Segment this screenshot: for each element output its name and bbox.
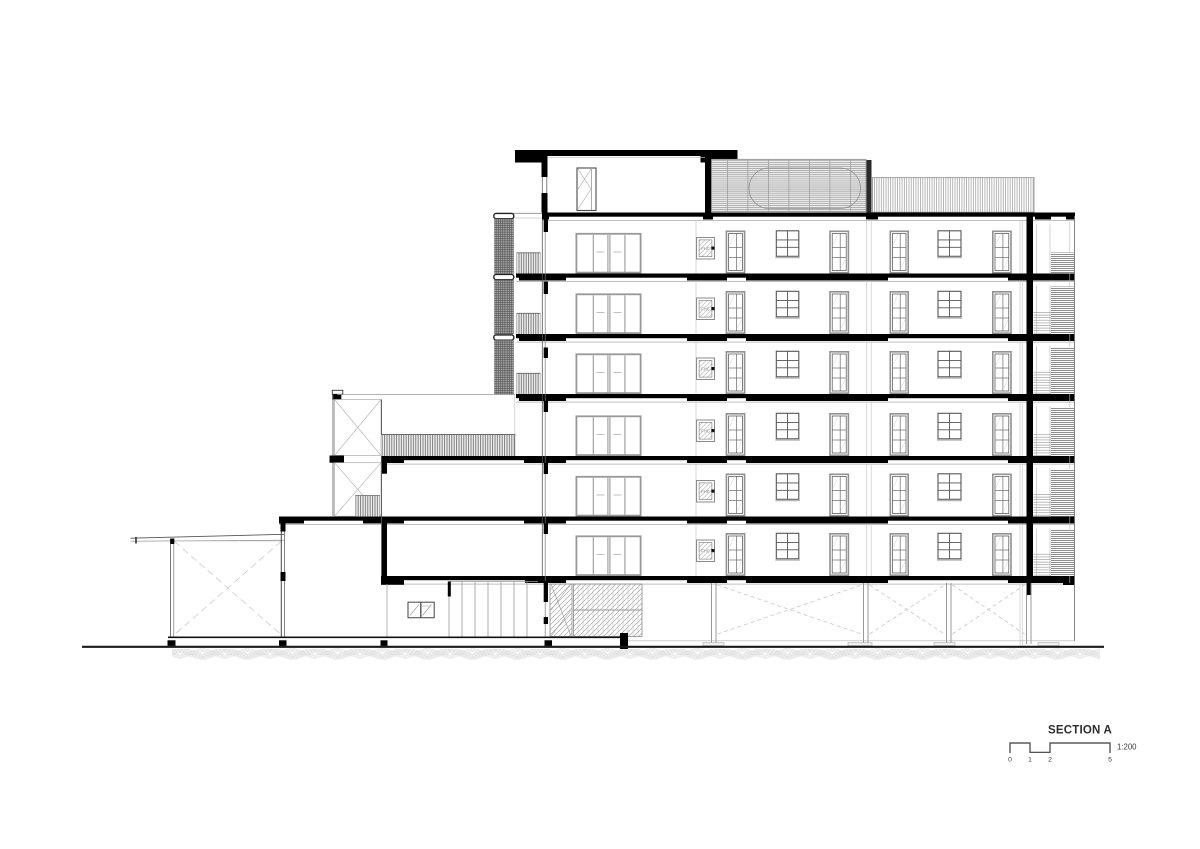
- svg-text:1:200: 1:200: [1117, 743, 1137, 752]
- svg-text:FHC: FHC: [701, 306, 710, 311]
- svg-text:FHC: FHC: [701, 489, 710, 494]
- svg-text:SECTION A: SECTION A: [1048, 725, 1112, 737]
- svg-text:FHC: FHC: [701, 366, 710, 371]
- svg-text:5: 5: [1108, 757, 1112, 764]
- svg-text:FHC: FHC: [701, 246, 710, 251]
- svg-text:2: 2: [1048, 757, 1052, 764]
- svg-text:FHC: FHC: [701, 548, 710, 553]
- svg-text:1: 1: [1028, 757, 1032, 764]
- svg-text:0: 0: [1008, 757, 1012, 764]
- svg-text:FHC: FHC: [701, 428, 710, 433]
